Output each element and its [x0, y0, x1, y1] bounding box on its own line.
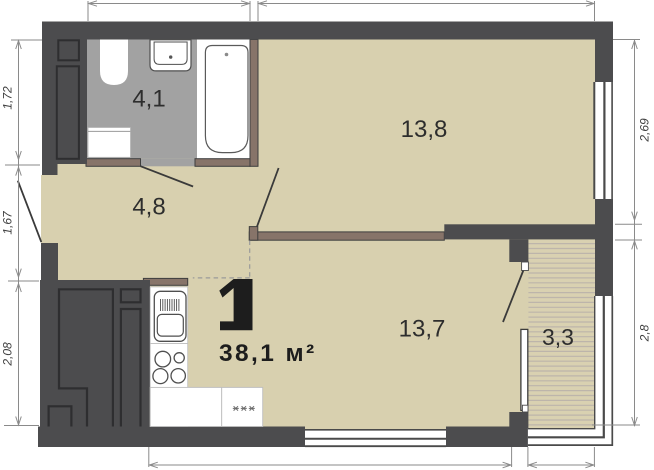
- svg-text:3,3: 3,3: [542, 324, 574, 350]
- svg-text:2,8: 2,8: [637, 324, 651, 342]
- svg-text:13,8: 13,8: [401, 116, 448, 143]
- svg-text:4,1: 4,1: [132, 86, 165, 113]
- svg-text:1,67: 1,67: [1, 210, 15, 235]
- svg-text:4,8: 4,8: [132, 194, 165, 221]
- svg-text:1,72: 1,72: [1, 86, 15, 110]
- svg-text:38,1 м²: 38,1 м²: [219, 340, 317, 367]
- svg-text:2,69: 2,69: [637, 118, 651, 143]
- svg-text:2,08: 2,08: [1, 342, 15, 367]
- svg-text:13,7: 13,7: [399, 316, 446, 343]
